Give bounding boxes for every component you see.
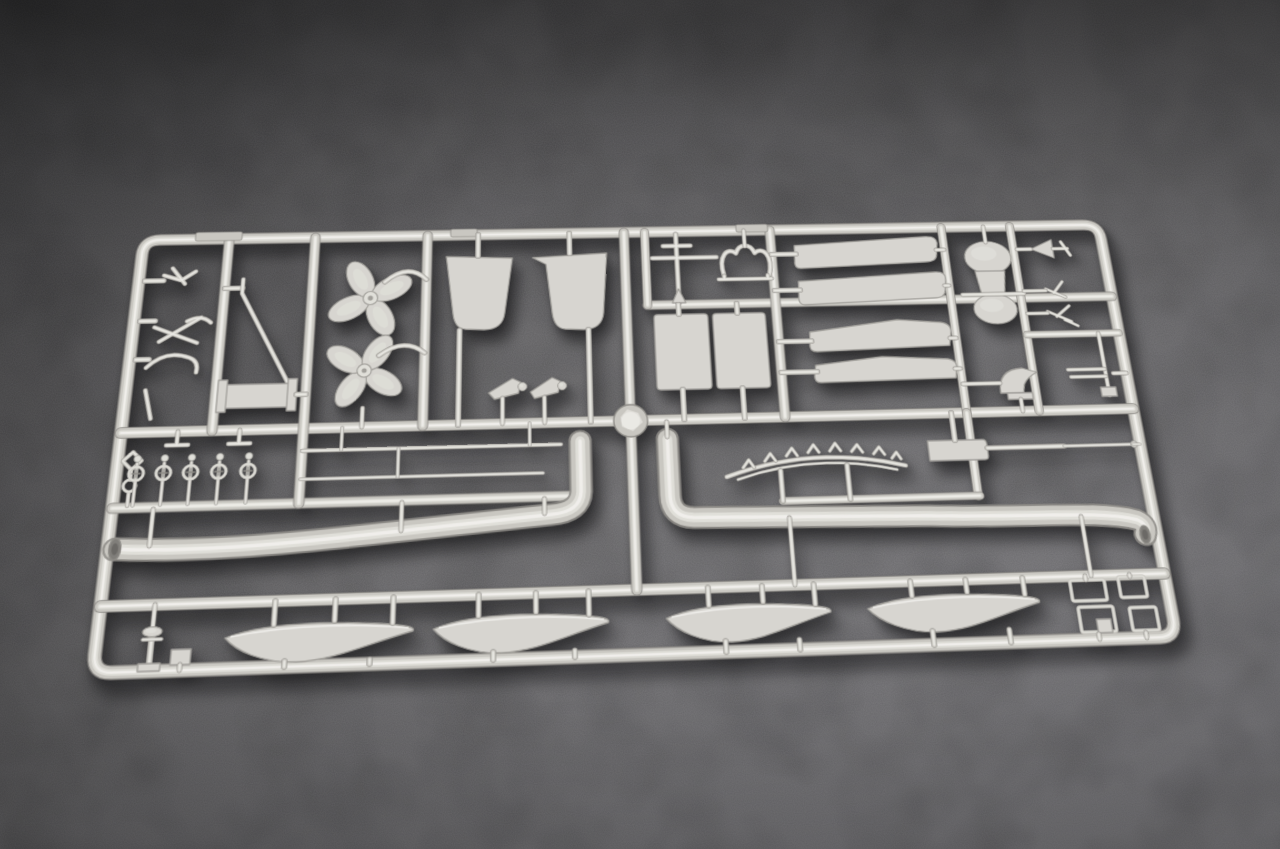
pulley-5 [238, 452, 257, 502]
small-anchor-2 [153, 317, 212, 344]
boat-hull-2 [433, 612, 610, 656]
propeller-lower [318, 330, 409, 412]
photo-of-model-kit-sprue [0, 0, 1280, 849]
finial-tail [1051, 242, 1070, 256]
panel-left [654, 314, 712, 390]
antenna-small-2 [1047, 306, 1078, 327]
ejector-tab-1 [195, 232, 242, 241]
finial-cone [1029, 240, 1054, 259]
hull-plank-3 [808, 319, 954, 352]
bollard-arm [143, 639, 162, 640]
propeller-lower-gate [362, 408, 363, 427]
pulley-4 [209, 453, 228, 504]
hatch-frame-1 [1070, 579, 1108, 601]
runner-right-mid [1027, 333, 1119, 335]
deck-block-gate [179, 665, 180, 671]
boat-hull-4 [867, 592, 1044, 634]
runner-v3 [423, 236, 428, 426]
pulley-3 [180, 454, 199, 505]
runner-v6 [770, 230, 786, 417]
ejector-tab-2 [451, 229, 478, 237]
rudder-right [532, 253, 608, 331]
runner-v5 [644, 232, 647, 305]
hatch-frame-4 [1129, 607, 1160, 631]
gun-mount-base [1101, 387, 1118, 397]
horn-right-knob [558, 381, 567, 390]
boat-hull-3 [666, 601, 834, 644]
small-hook [145, 354, 198, 373]
cable-drum [223, 383, 290, 408]
capstan-gate [983, 227, 985, 243]
gun-mount-barrels [1068, 369, 1106, 377]
cannon-breech [927, 439, 989, 461]
bollard-cap [142, 627, 163, 637]
ejector-tab-3 [736, 224, 768, 232]
plastic-sprue [84, 217, 1186, 683]
cannon-barrel [987, 446, 1064, 448]
hatch-frame-3-block [1096, 619, 1113, 633]
mast-cross-foot [672, 289, 686, 303]
sprue-perspective-wrap [84, 217, 1186, 683]
bollard-base [137, 663, 160, 672]
rudder-left [445, 256, 513, 331]
panel-right [712, 313, 771, 389]
small-anchor-1 [163, 268, 196, 284]
small-rod-left [142, 390, 153, 419]
pulley-2 [153, 455, 173, 506]
runner-serrated-rail [783, 496, 980, 501]
runner-left-lower [112, 496, 572, 508]
gun-mount-post [1098, 333, 1109, 395]
bollard-gate [153, 605, 155, 627]
propeller-upper [322, 256, 417, 341]
rudder-right-post [589, 329, 591, 421]
wishbone-bracket [721, 245, 771, 276]
hull-plank-1 [793, 236, 941, 268]
thin-rod-lower [300, 473, 543, 479]
capstan-bar [963, 294, 1024, 295]
capstan-upper-drum [962, 241, 1013, 274]
runner-v2 [299, 237, 316, 503]
derrick-arm [234, 278, 295, 384]
rudder-left-post [458, 330, 460, 425]
sprue-hub [613, 404, 648, 437]
cannon-barrel-tip [1064, 444, 1133, 446]
mast-cross [651, 233, 719, 303]
horn-left [489, 378, 521, 399]
cannon-gate [951, 413, 955, 440]
horn-left-knob [518, 382, 527, 391]
hull-plank-4 [813, 355, 959, 383]
